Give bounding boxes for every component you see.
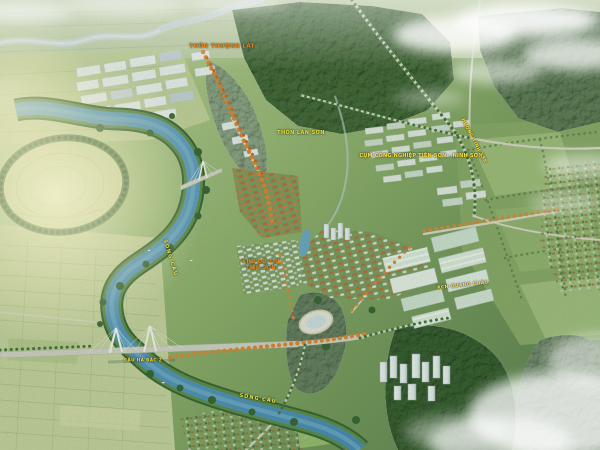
masterplan-render: THÔN THƯỢNG LÁT THÔN LÁN SƠN CỤM CÔNG NG… bbox=[0, 0, 600, 450]
aerial-scene bbox=[0, 0, 600, 450]
